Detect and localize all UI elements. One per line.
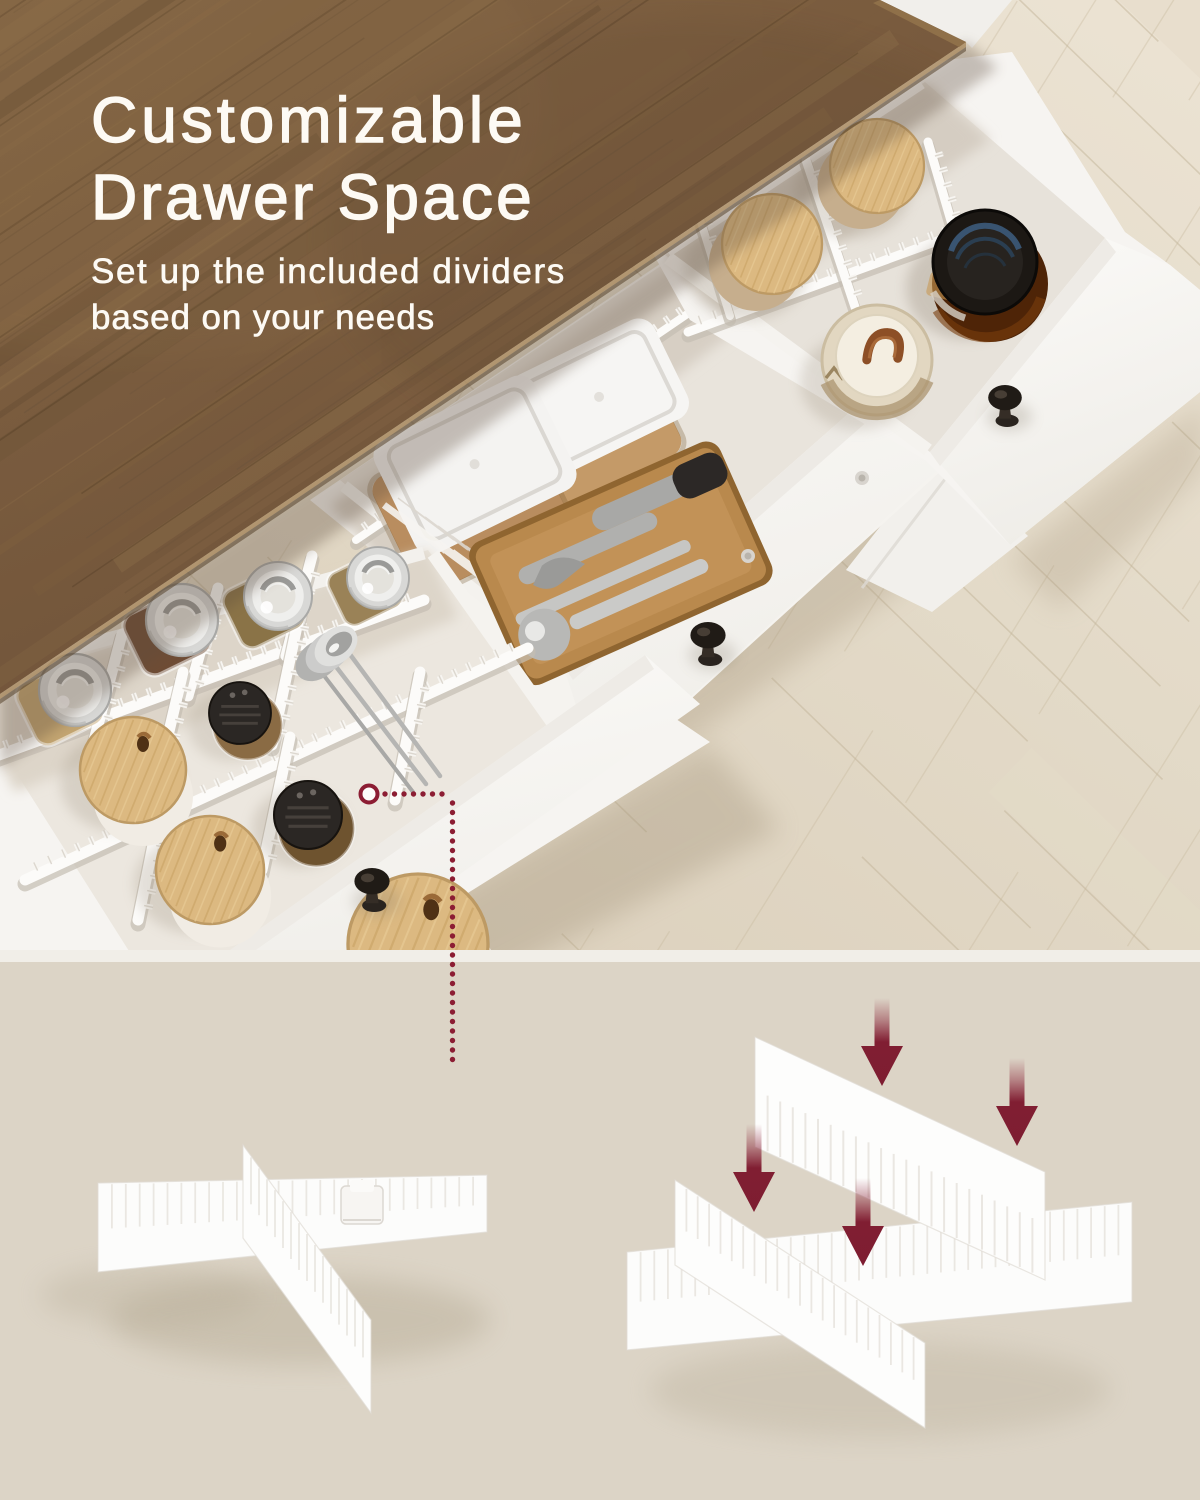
svg-text:Drawer Space: Drawer Space xyxy=(91,161,535,233)
svg-text:Set up the included dividers: Set up the included dividers xyxy=(91,252,566,291)
svg-text:Customizable: Customizable xyxy=(91,84,527,156)
svg-text:based on your needs: based on your needs xyxy=(91,298,435,337)
